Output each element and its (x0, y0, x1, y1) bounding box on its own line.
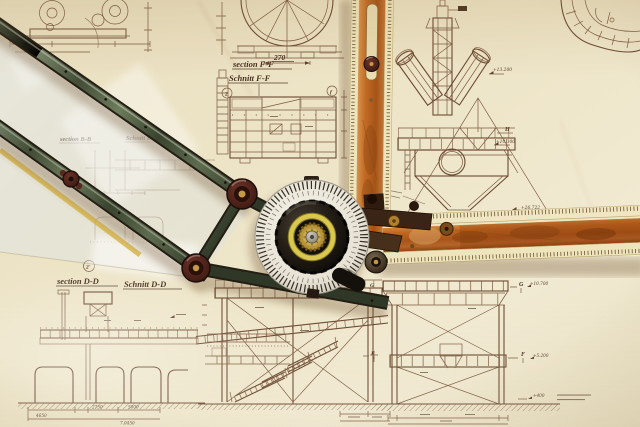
dim-4650: 4650 (35, 413, 47, 418)
dim-270: 270 (273, 53, 286, 62)
dim-total: 7.0450 (120, 421, 135, 426)
label-schnitt-ff: Schnitt F-F (229, 73, 271, 83)
dim-2750: 2750 (91, 405, 103, 410)
level-g-right: G (519, 282, 524, 288)
level-f-center: F (371, 351, 375, 357)
elev-5200: +5.200 (533, 353, 549, 358)
level-g-center: G (370, 283, 374, 289)
pivot-elbow-upper (227, 179, 257, 209)
bracket-knob-small[interactable] (409, 201, 419, 211)
scene-svg: 270 section F-F Schnitt F-F 2 f (0, 0, 640, 427)
elev-13200: +13.200 (493, 68, 512, 73)
elev-10700: +10.700 (530, 281, 548, 286)
label-section-dd: section D-D (56, 276, 99, 286)
marker-2prime: 2' (85, 265, 91, 271)
photo-drafting-table: 270 section F-F Schnitt F-F 2 f (0, 0, 640, 427)
elev-400: +400 (533, 393, 545, 398)
label-schnitt-dd: Schnitt D-D (124, 279, 166, 289)
label-section-ff: section F-F (232, 59, 274, 69)
marker-2: 2 (224, 92, 228, 98)
level-f-right: F (521, 352, 525, 358)
pivot-elbow-lower (182, 254, 210, 282)
dial-bottom-tab (306, 288, 319, 299)
dim-5000: 5000 (128, 405, 139, 410)
